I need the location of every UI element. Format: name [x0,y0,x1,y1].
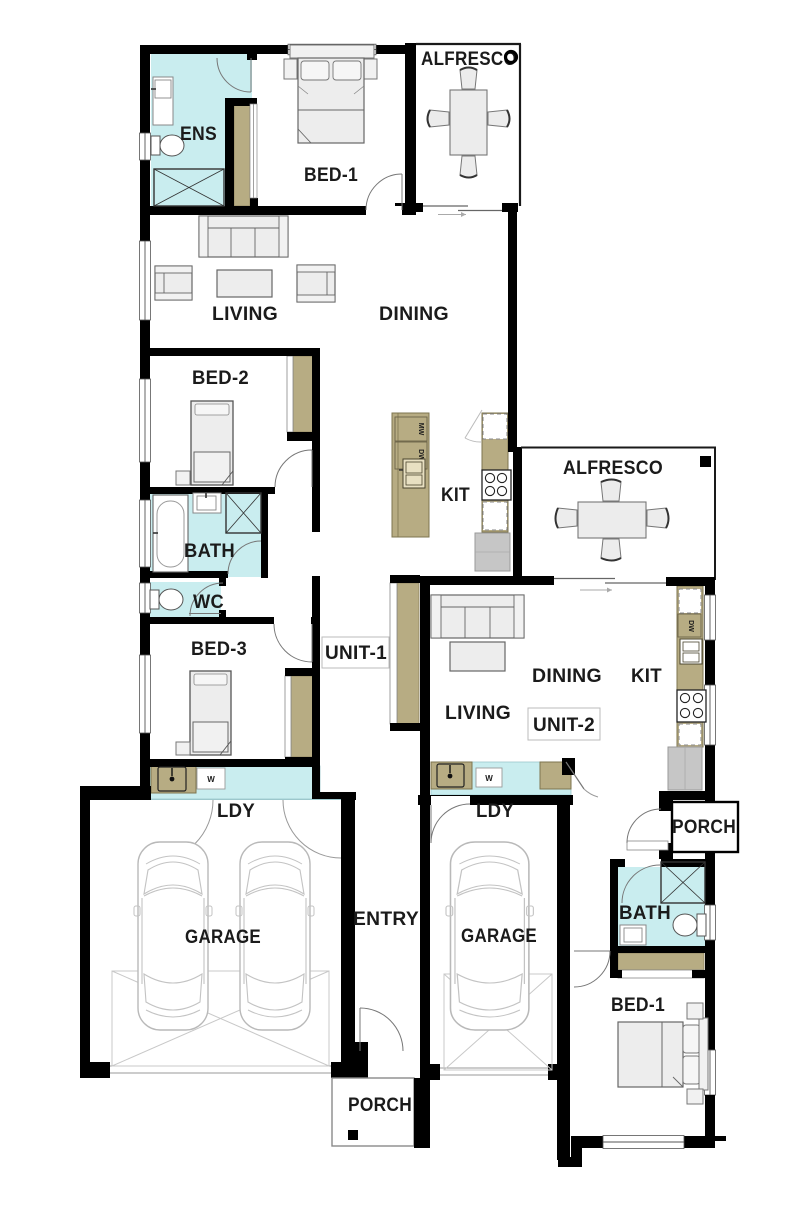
svg-text:GARAGE: GARAGE [185,927,261,948]
svg-text:UNIT-1: UNIT-1 [325,643,387,664]
svg-text:ENTRY: ENTRY [353,909,419,930]
svg-text:BED-1: BED-1 [611,995,665,1016]
svg-text:KIT: KIT [441,485,470,506]
svg-text:DINING: DINING [532,666,602,687]
svg-text:MW: MW [417,423,424,436]
svg-text:W: W [207,775,215,784]
svg-text:PORCH: PORCH [672,817,736,838]
svg-text:ALFRESCO: ALFRESCO [421,49,517,70]
svg-text:W: W [485,774,493,783]
svg-text:DINING: DINING [379,304,449,325]
svg-text:BATH: BATH [184,541,235,562]
svg-text:ENS: ENS [180,124,217,145]
svg-text:PORCH: PORCH [348,1095,412,1116]
svg-text:UNIT-2: UNIT-2 [533,715,595,736]
svg-text:BATH: BATH [619,903,671,924]
svg-text:ALFRESCO: ALFRESCO [563,458,663,479]
svg-text:DW: DW [687,620,694,632]
svg-text:LDY: LDY [476,801,514,822]
svg-text:BED-1: BED-1 [304,165,358,186]
svg-text:LIVING: LIVING [212,304,278,325]
svg-text:GARAGE: GARAGE [461,926,537,947]
svg-text:BED-3: BED-3 [191,639,247,660]
svg-text:BED-2: BED-2 [192,368,249,389]
svg-text:KIT: KIT [631,666,662,687]
svg-text:LDY: LDY [217,801,255,822]
svg-text:LIVING: LIVING [445,703,511,724]
svg-text:WC: WC [193,592,224,613]
